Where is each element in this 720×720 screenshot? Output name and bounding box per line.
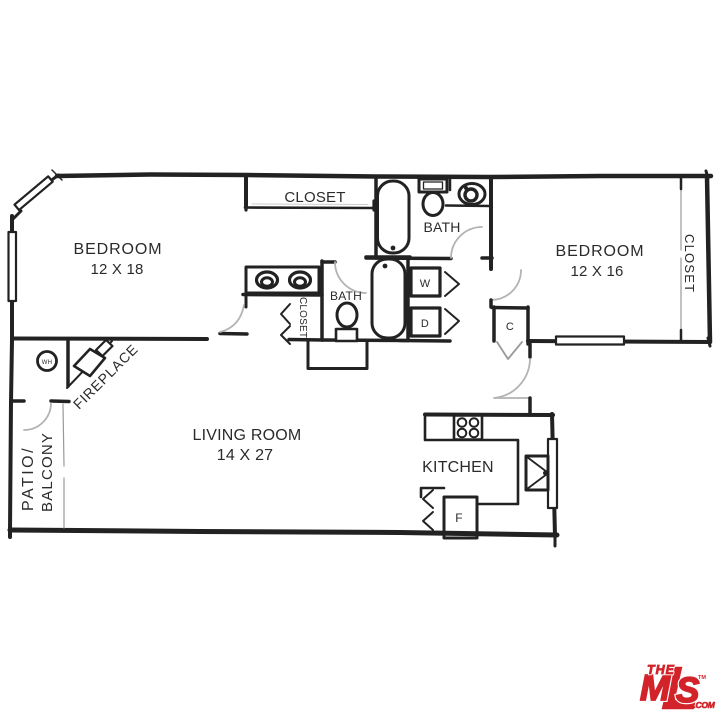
svg-text:BEDROOM: BEDROOM bbox=[556, 243, 645, 260]
svg-text:14 X 27: 14 X 27 bbox=[217, 447, 274, 464]
svg-text:CLOSET: CLOSET bbox=[284, 189, 345, 206]
svg-text:W: W bbox=[420, 278, 431, 290]
svg-text:KITCHEN: KITCHEN bbox=[422, 459, 494, 476]
svg-text:12 X 18: 12 X 18 bbox=[90, 261, 143, 278]
svg-text:12 X 16: 12 X 16 bbox=[570, 263, 623, 280]
svg-text:BEDROOM: BEDROOM bbox=[74, 241, 163, 258]
svg-text:WH: WH bbox=[42, 360, 52, 366]
svg-text:CLOSET: CLOSET bbox=[297, 297, 308, 338]
svg-text:CLOSET: CLOSET bbox=[682, 234, 697, 293]
svg-text:LIVING ROOM: LIVING ROOM bbox=[193, 427, 302, 444]
svg-text:THE: THE bbox=[647, 663, 675, 677]
svg-text:D: D bbox=[421, 318, 429, 330]
svg-text:BALCONY: BALCONY bbox=[39, 432, 56, 512]
svg-text:BATH: BATH bbox=[330, 289, 362, 303]
svg-text:.COM: .COM bbox=[694, 700, 716, 710]
svg-text:F: F bbox=[455, 511, 463, 525]
svg-text:TM: TM bbox=[698, 675, 706, 681]
svg-text:C: C bbox=[506, 321, 514, 333]
svg-text:BATH: BATH bbox=[423, 219, 460, 235]
svg-text:PATIO/: PATIO/ bbox=[20, 446, 37, 511]
